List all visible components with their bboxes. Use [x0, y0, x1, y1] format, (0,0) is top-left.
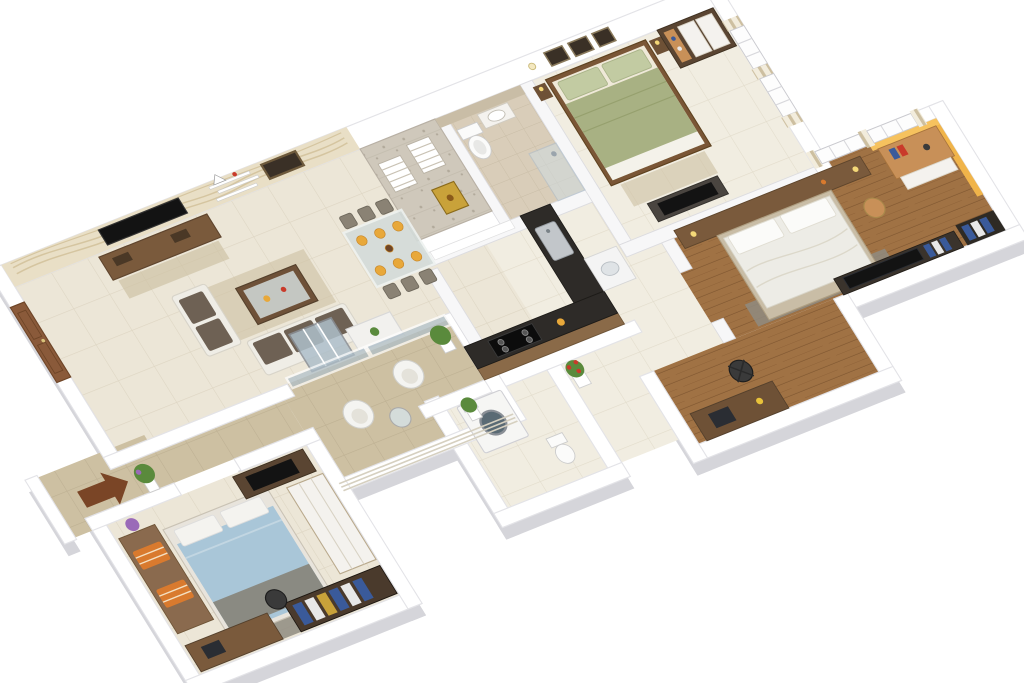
floor-plan-render	[0, 0, 1024, 683]
